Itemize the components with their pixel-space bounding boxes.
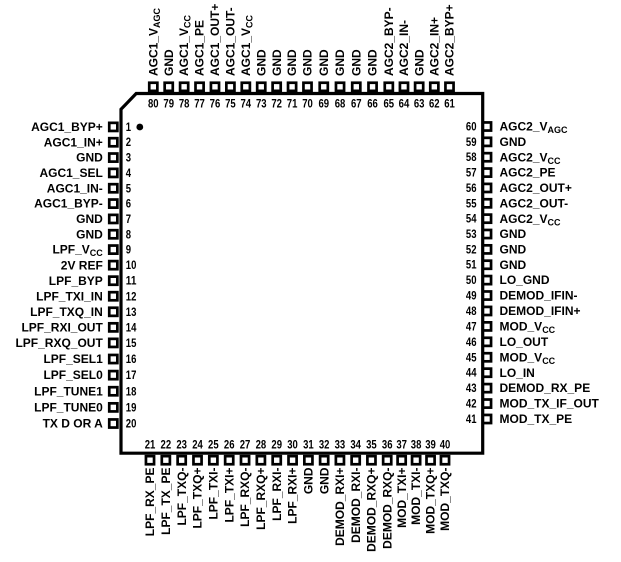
svg-text:71: 71: [287, 96, 298, 110]
svg-text:1: 1: [126, 120, 132, 134]
svg-text:AGC2_IN+: AGC2_IN+: [427, 17, 441, 76]
svg-text:41: 41: [466, 412, 477, 426]
svg-text:LPF_RXI_OUT: LPF_RXI_OUT: [21, 320, 103, 334]
svg-text:7: 7: [126, 212, 132, 226]
svg-text:2: 2: [126, 135, 132, 149]
svg-text:GND: GND: [270, 49, 284, 76]
svg-text:51: 51: [466, 258, 477, 272]
svg-text:LPF_RX_PE: LPF_RX_PE: [143, 468, 157, 537]
svg-text:GND: GND: [366, 49, 380, 76]
svg-text:80: 80: [148, 96, 159, 110]
svg-text:TX D OR A: TX D OR A: [43, 417, 104, 431]
svg-text:74: 74: [241, 96, 252, 110]
svg-text:AGC2_BYP-: AGC2_BYP-: [382, 7, 396, 76]
svg-text:GND: GND: [162, 49, 176, 76]
svg-text:16: 16: [126, 352, 137, 366]
svg-text:23: 23: [176, 438, 187, 452]
svg-text:DEMOD_RXQ+: DEMOD_RXQ+: [365, 468, 379, 552]
svg-text:LO_GND: LO_GND: [500, 273, 550, 287]
svg-text:68: 68: [335, 96, 346, 110]
svg-text:39: 39: [425, 438, 436, 452]
svg-text:64: 64: [399, 96, 410, 110]
svg-text:MOD_TXQ-: MOD_TXQ-: [438, 467, 452, 530]
svg-text:AGC2_OUT+: AGC2_OUT+: [500, 181, 572, 195]
svg-text:10: 10: [126, 258, 137, 272]
svg-text:AGC2_BYP+: AGC2_BYP+: [443, 4, 457, 76]
svg-text:AGC1_OUT-: AGC1_OUT-: [224, 7, 238, 76]
svg-text:11: 11: [126, 274, 137, 288]
svg-text:54: 54: [466, 212, 477, 226]
svg-text:LPF_BYP: LPF_BYP: [49, 274, 103, 288]
svg-text:GND: GND: [76, 151, 103, 165]
svg-text:MOD_TX_PE: MOD_TX_PE: [500, 412, 573, 426]
svg-text:LPF_SEL1: LPF_SEL1: [43, 352, 103, 366]
svg-text:75: 75: [225, 96, 236, 110]
svg-text:28: 28: [256, 438, 267, 452]
svg-text:49: 49: [466, 289, 477, 303]
svg-text:GND: GND: [302, 467, 316, 494]
svg-text:LPF_RXQ+: LPF_RXQ+: [254, 468, 268, 530]
svg-text:79: 79: [163, 96, 174, 110]
svg-text:GND: GND: [500, 227, 527, 241]
svg-text:MOD_TXI+: MOD_TXI+: [395, 468, 409, 528]
svg-text:13: 13: [126, 305, 137, 319]
svg-text:40: 40: [440, 438, 451, 452]
svg-text:52: 52: [466, 242, 477, 256]
svg-text:65: 65: [384, 96, 395, 110]
svg-text:36: 36: [382, 438, 393, 452]
svg-text:GND: GND: [500, 135, 527, 149]
svg-text:GND: GND: [349, 49, 363, 76]
svg-text:44: 44: [466, 366, 477, 380]
svg-text:50: 50: [466, 273, 477, 287]
svg-text:22: 22: [161, 438, 172, 452]
svg-text:32: 32: [319, 438, 330, 452]
svg-text:LPF_RXQ-: LPF_RXQ-: [238, 468, 252, 527]
svg-text:20: 20: [126, 417, 137, 431]
svg-text:LPF_RXQ_OUT: LPF_RXQ_OUT: [15, 336, 103, 350]
svg-text:LPF_TUNE0: LPF_TUNE0: [34, 400, 103, 414]
svg-text:DEMOD_RXI-: DEMOD_RXI-: [349, 468, 363, 543]
svg-text:LPF_TUNE1: LPF_TUNE1: [34, 384, 103, 398]
svg-text:60: 60: [466, 120, 477, 134]
svg-text:53: 53: [466, 227, 477, 241]
svg-text:LPF_TXI_IN: LPF_TXI_IN: [36, 289, 103, 303]
svg-text:48: 48: [466, 304, 477, 318]
svg-text:AGC1_BYP-: AGC1_BYP-: [34, 197, 103, 211]
svg-text:43: 43: [466, 381, 477, 395]
svg-text:17: 17: [126, 368, 137, 382]
svg-text:56: 56: [466, 181, 477, 195]
svg-text:31: 31: [303, 438, 314, 452]
svg-text:9: 9: [126, 243, 132, 257]
svg-text:18: 18: [126, 384, 137, 398]
svg-text:70: 70: [302, 96, 313, 110]
svg-text:4: 4: [126, 166, 132, 180]
svg-text:AGC2_OUT-: AGC2_OUT-: [500, 196, 569, 210]
svg-text:LPF_RXI-: LPF_RXI-: [270, 468, 284, 521]
svg-text:GND: GND: [254, 49, 268, 76]
svg-text:AGC2_PE: AGC2_PE: [500, 166, 556, 180]
svg-text:26: 26: [224, 438, 235, 452]
svg-text:DEMOD_IFIN+: DEMOD_IFIN+: [500, 304, 581, 318]
svg-text:58: 58: [466, 150, 477, 164]
svg-text:GND: GND: [76, 227, 103, 241]
svg-text:DEMOD_RX_PE: DEMOD_RX_PE: [500, 381, 591, 395]
svg-text:LPF_TXI-: LPF_TXI-: [206, 468, 220, 520]
svg-text:LPF_SEL0: LPF_SEL0: [43, 368, 103, 382]
svg-text:MOD_TX_IF_OUT: MOD_TX_IF_OUT: [500, 397, 600, 411]
svg-text:GND: GND: [317, 49, 331, 76]
svg-text:AGC1_IN+: AGC1_IN+: [44, 135, 103, 149]
svg-text:GND: GND: [333, 49, 347, 76]
svg-text:29: 29: [271, 438, 282, 452]
svg-text:55: 55: [466, 196, 477, 210]
svg-text:AGC1_IN-: AGC1_IN-: [47, 181, 103, 195]
svg-text:LPF_TXI+: LPF_TXI+: [222, 468, 236, 523]
svg-text:2V REF: 2V REF: [61, 258, 103, 272]
svg-text:GND: GND: [317, 467, 331, 494]
svg-text:GND: GND: [500, 258, 527, 272]
svg-text:LPF_TXQ_IN: LPF_TXQ_IN: [30, 305, 103, 319]
svg-text:38: 38: [411, 438, 422, 452]
svg-text:DEMOD_RXQ-: DEMOD_RXQ-: [380, 468, 394, 549]
svg-text:72: 72: [271, 96, 282, 110]
svg-text:8: 8: [126, 227, 132, 241]
svg-text:14: 14: [126, 320, 137, 334]
svg-text:57: 57: [466, 166, 477, 180]
svg-text:27: 27: [240, 438, 251, 452]
svg-text:AGC2_IN-: AGC2_IN-: [397, 20, 411, 76]
svg-text:42: 42: [466, 397, 477, 411]
svg-text:GND: GND: [285, 49, 299, 76]
svg-text:59: 59: [466, 135, 477, 149]
svg-text:47: 47: [466, 319, 477, 333]
svg-text:35: 35: [366, 438, 377, 452]
svg-text:LPF_TXQ-: LPF_TXQ-: [175, 468, 189, 526]
svg-text:LPF_TX_PE: LPF_TX_PE: [159, 468, 173, 535]
svg-text:66: 66: [367, 96, 378, 110]
svg-text:LPF_RXI+: LPF_RXI+: [286, 468, 300, 524]
svg-text:73: 73: [256, 96, 267, 110]
svg-text:LPF_TXQ+: LPF_TXQ+: [191, 468, 205, 529]
svg-text:AGC1_SEL: AGC1_SEL: [39, 166, 102, 180]
svg-text:69: 69: [318, 96, 329, 110]
svg-text:5: 5: [126, 181, 132, 195]
svg-text:DEMOD_RXI+: DEMOD_RXI+: [333, 468, 347, 546]
svg-text:46: 46: [466, 335, 477, 349]
svg-text:GND: GND: [301, 49, 315, 76]
svg-text:67: 67: [351, 96, 362, 110]
svg-text:25: 25: [208, 438, 219, 452]
svg-text:19: 19: [126, 400, 137, 414]
svg-text:62: 62: [429, 96, 440, 110]
svg-text:33: 33: [335, 438, 346, 452]
svg-text:AGC1_PE: AGC1_PE: [193, 20, 207, 76]
svg-text:AGC1_OUT+: AGC1_OUT+: [208, 4, 222, 76]
svg-text:78: 78: [179, 96, 190, 110]
svg-text:24: 24: [192, 438, 203, 452]
svg-text:AGC1_BYP+: AGC1_BYP+: [31, 120, 103, 134]
svg-text:77: 77: [194, 96, 205, 110]
svg-text:6: 6: [126, 197, 132, 211]
svg-text:15: 15: [126, 336, 137, 350]
svg-text:DEMOD_IFIN-: DEMOD_IFIN-: [500, 289, 578, 303]
svg-text:3: 3: [126, 151, 132, 165]
svg-text:34: 34: [350, 438, 361, 452]
svg-text:45: 45: [466, 350, 477, 364]
svg-text:61: 61: [444, 96, 455, 110]
svg-text:63: 63: [414, 96, 425, 110]
svg-text:MOD_TXI-: MOD_TXI-: [409, 468, 423, 525]
svg-text:37: 37: [396, 438, 407, 452]
svg-text:76: 76: [210, 96, 221, 110]
svg-text:12: 12: [126, 289, 137, 303]
svg-text:LO_IN: LO_IN: [500, 366, 535, 380]
svg-text:30: 30: [287, 438, 298, 452]
svg-text:GND: GND: [76, 212, 103, 226]
svg-text:LO_OUT: LO_OUT: [500, 335, 549, 349]
svg-text:MOD_TXQ+: MOD_TXQ+: [424, 468, 438, 534]
svg-text:21: 21: [145, 438, 156, 452]
svg-text:GND: GND: [412, 49, 426, 76]
svg-text:GND: GND: [500, 242, 527, 256]
